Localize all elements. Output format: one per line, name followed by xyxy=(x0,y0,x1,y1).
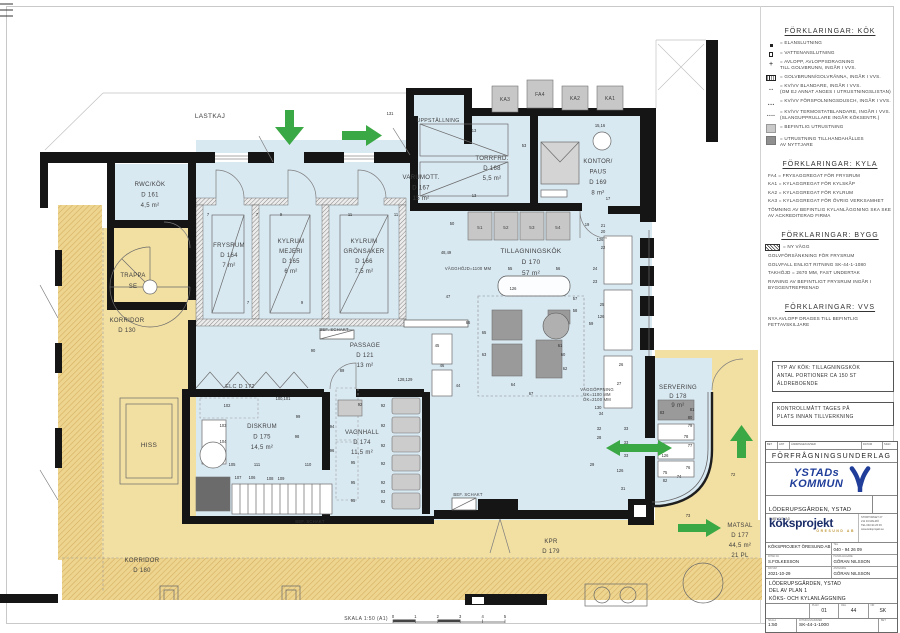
plus-icon xyxy=(765,59,777,67)
ref-tag: 92 xyxy=(381,480,386,485)
legend-kok-item: = KV/VV TERMOSTATBLANDARE, INGÅR I VVS.(… xyxy=(765,109,895,121)
scale-tick: 0 xyxy=(392,614,395,619)
ref-tag: 15,16 xyxy=(595,123,606,128)
ref-tag: 60 xyxy=(561,352,566,357)
legend-text: = ELANSLUTNING xyxy=(780,40,822,46)
ystad-falcon-icon xyxy=(847,466,873,492)
ref-tag: 64 xyxy=(511,382,516,387)
floor-plan: SKALA 1:50 (A1) 012345 LASTKAJUPPSTÄLLNI… xyxy=(0,0,762,630)
ystad-logo-line2: KOMMUN xyxy=(790,479,844,490)
ref-tag: 24 xyxy=(593,266,598,271)
ref-tag: 47 xyxy=(446,294,451,299)
rev-col-datum: DATUM xyxy=(862,442,883,449)
ref-tag: 126 xyxy=(662,453,670,458)
legend-text: = BEFINTLIG UTRUSTNING xyxy=(780,124,844,130)
ref-tag: 33 xyxy=(624,440,629,445)
label-lastkaj: LASTKAJ xyxy=(195,113,225,120)
ref-tag: 44 xyxy=(456,383,461,388)
ref-tag: 11 xyxy=(394,212,399,217)
ref-tag: 31 xyxy=(621,486,626,491)
hatch-icon xyxy=(765,244,780,251)
ref-tag: 80 xyxy=(688,415,693,420)
ref-tag: 33 xyxy=(624,426,629,431)
ref-tag: 66 xyxy=(466,320,471,325)
koksprojekt-logo-row: köksprojekt ÖRESUND AB STORTORGET 27 211… xyxy=(766,514,897,543)
dots-2-icon xyxy=(765,83,777,92)
ref-tag: 27 xyxy=(617,381,622,386)
legend-kok-item: = BEFINTLIG UTRUSTNING xyxy=(765,124,895,133)
scale-text: SKALA 1:50 (A1) xyxy=(344,616,388,622)
ref-tag: 13 xyxy=(472,128,477,133)
object-line: LÖDERUPSGÅRDEN, YSTAD xyxy=(769,581,894,588)
ref-tag: 126 xyxy=(510,286,518,291)
ref-tag: 105 xyxy=(229,462,237,467)
field-drawn-by: S.FOLKESSON xyxy=(768,559,829,565)
note-line: TYP AV KÖK: TILLAGNINGSKÖK xyxy=(777,365,889,373)
legend-text: GOLVFALL ENLIGT RITNING SK-44-1-1080 xyxy=(768,262,866,268)
rev-col-sign: SIGN xyxy=(883,442,897,449)
drawing-number: SK-44-1-1000 xyxy=(799,623,876,628)
scale-tick: 1 xyxy=(414,614,417,619)
legend-text: FA4 = FRYSAGGREGAT FÖR FRYSRUM xyxy=(768,173,860,179)
koksprojekt-logo: köksprojekt xyxy=(769,517,855,529)
field-tel: 040 - 94 26 09 xyxy=(834,547,896,553)
ref-tag: 63 xyxy=(482,352,487,357)
ref-tag: 103 xyxy=(220,423,228,428)
legend-text: = VATTENANSLUTNING xyxy=(780,50,835,56)
ref-tag: 77 xyxy=(688,443,693,448)
ref-tag: 93 xyxy=(381,489,386,494)
legend-text: TÖMNING AV BEFINTLIG KYLANLÄGGNING SKA S… xyxy=(768,207,891,219)
legend-kok-item: = KV/VV BLANDARE, INGÅR I VVS.(OM EJ ANN… xyxy=(765,83,895,95)
note-wall-height: VÄGGHÖJD=1100 MM xyxy=(445,266,492,271)
ref-tag: 19 xyxy=(585,222,590,227)
title-fields: KÖKSPROJEKT ÖRESUND AB TEL040 - 94 26 09… xyxy=(766,543,897,579)
ref-tag: 76 xyxy=(686,465,691,470)
ref-tag: 23 xyxy=(593,279,598,284)
ref-tag: 65 xyxy=(482,330,487,335)
legend-bygg-item: RIVNING AV BEFINTLIGT FRYSRUM INGÅR IBYG… xyxy=(765,279,895,291)
legend-vvs-item: NYA AVLOPP DRAGES TILL BEFINTLIGFETTAVSK… xyxy=(765,316,895,328)
dots-3-icon xyxy=(765,98,777,107)
ref-tag: 126 xyxy=(617,468,625,473)
ref-tag: 74 xyxy=(677,474,682,479)
square-open-icon xyxy=(765,50,777,57)
ystads-kommun-logo: YSTADs KOMMUN xyxy=(766,463,897,496)
legend-text: = KV/VV TERMOSTATBLANDARE, INGÅR I VVS.(… xyxy=(780,109,890,121)
ref-tag: 92 xyxy=(381,499,386,504)
meta-del: 44 xyxy=(841,608,865,614)
legend-text: KA3 = KYLAGGREGAT FÖR ÖVRIG VERKSAMHET xyxy=(768,198,884,204)
ref-tag: 13 xyxy=(472,193,477,198)
meta-row: PLAN01 DEL44 NRSK xyxy=(766,604,897,619)
scale-row: SKALA1:50 RITNINGSNUMMERSK-44-1-1000 BET xyxy=(766,619,897,632)
ref-tag: 55 xyxy=(508,266,513,271)
note-kitchen-type: TYP AV KÖK: TILLAGNINGSKÖK ANTAL PORTION… xyxy=(772,361,894,392)
legend-kok-item: = KV/VV FÖRSPOLNINGSDUSCH, INGÅR I VVS. xyxy=(765,98,895,107)
legend-bygg-item: GOLVFALL ENLIGT RITNING SK-44-1-1080 xyxy=(765,262,895,268)
rev-col-andringen: ÄNDRINGEN AVSER xyxy=(790,442,862,449)
ref-tag: 128,129 xyxy=(398,377,414,382)
document-status: FÖRFRÅGNINGSUNDERLAG xyxy=(766,450,897,463)
ref-tag: 102 xyxy=(224,403,232,408)
legend-kok-item: = UTRUSTNING TILLHANDAHÅLLESAV NYTTJARE xyxy=(765,136,895,148)
ref-tag: 106 xyxy=(249,475,257,480)
project-row: LÖDERUPSGÅRDEN, YSTAD OMBYGGNAD xyxy=(766,496,897,514)
ref-tag: 98 xyxy=(295,434,300,439)
legend-text: TAKHÖJD = 2670 MM, FAST UNDERTAK xyxy=(768,270,860,276)
ref-tag: 96 xyxy=(330,448,335,453)
project-side-cell xyxy=(872,496,897,513)
swatch-light-icon xyxy=(765,124,777,133)
ref-tag: 73 xyxy=(686,513,691,518)
legend-title-kyla: FÖRKLARINGAR: KYLA xyxy=(765,161,895,168)
legend-text: = NY VÄGG xyxy=(783,244,810,250)
ref-tag: 59 xyxy=(589,321,594,326)
legend-section-kok: FÖRKLARINGAR: KÖK = ELANSLUTNING= VATTEN… xyxy=(765,28,895,148)
legend-text: = KV/VV FÖRSPOLNINGSDUSCH, INGÅR I VVS. xyxy=(780,98,891,104)
koksprojekt-address: STORTORGET 27 211 34 MALMÖ TEL 040-94 26… xyxy=(858,514,897,542)
ref-tag: 126 xyxy=(598,314,606,319)
ref-tag: 21 xyxy=(601,223,606,228)
ref-tag: 72 xyxy=(731,472,736,477)
label-eq-52: 52 xyxy=(503,225,509,230)
note-line: KONTROLLMÅTT TAGES PÅ xyxy=(777,406,889,414)
project-name: LÖDERUPSGÅRDEN, YSTAD xyxy=(769,507,851,513)
note-control-measure: KONTROLLMÅTT TAGES PÅ PLATS INNAN TILLVE… xyxy=(772,402,894,426)
square-filled-icon xyxy=(765,40,777,47)
title-block: BET ANT ÄNDRINGEN AVSER DATUM SIGN FÖRFR… xyxy=(765,441,898,633)
ref-tag: 111 xyxy=(254,462,261,467)
ref-tag: 53 xyxy=(522,143,527,148)
ref-tag: 20 xyxy=(601,229,606,234)
meta-nr: SK xyxy=(871,608,895,614)
legend-text: RIVNING AV BEFINTLIGT FRYSRUM INGÅR IBYG… xyxy=(768,279,871,291)
ref-tag: 82 xyxy=(663,478,668,483)
scale-tick: 2 xyxy=(437,614,440,619)
scale-tick: 5 xyxy=(504,614,507,619)
ref-tag: 22 xyxy=(601,245,606,250)
ref-tag: 46 xyxy=(440,363,445,368)
ref-tag: 130 xyxy=(595,405,603,410)
legend-panel: FÖRKLARINGAR: KÖK = ELANSLUTNING= VATTEN… xyxy=(765,28,895,341)
address-line: www.koksprojekt.se xyxy=(861,528,895,532)
label-fa4: FA4 xyxy=(535,92,545,98)
legend-bygg-item: TAKHÖJD = 2670 MM, FAST UNDERTAK xyxy=(765,270,895,276)
ref-tag: 56 xyxy=(556,266,561,271)
ref-tag: 79 xyxy=(688,423,693,428)
legend-kok-item: = ELANSLUTNING xyxy=(765,40,895,47)
label-eq-54: 54 xyxy=(555,225,561,230)
legend-text: = GOLVBRUNN/GOLVRÄNNA, INGÅR I VVS. xyxy=(780,74,881,80)
ref-tag: 94 xyxy=(330,424,335,429)
legend-kyla-item: KA1 = KYLAGGREGAT FÖR KYLSKÅP xyxy=(765,181,895,187)
label-ka1: KA1 xyxy=(605,96,615,102)
label-hiss: HISS xyxy=(141,442,158,449)
ref-tag: 107 xyxy=(235,475,243,480)
scale-bar: SKALA 1:50 (A1) 012345 xyxy=(344,614,507,623)
legend-section-kyla: FÖRKLARINGAR: KYLA FA4 = FRYSAGGREGAT FÖ… xyxy=(765,161,895,219)
legend-text: NYA AVLOPP DRAGES TILL BEFINTLIGFETTAVSK… xyxy=(768,316,858,328)
ref-tag: 109 xyxy=(278,476,286,481)
field-handler: GÖRAN NILSSON xyxy=(834,559,896,565)
ref-tag: 92 xyxy=(358,402,363,407)
ref-tag: 126 xyxy=(597,237,605,242)
legend-text: = KV/VV BLANDARE, INGÅR I VVS.(OM EJ ANN… xyxy=(780,83,891,95)
ref-tag: 92 xyxy=(381,443,386,448)
legend-text: GOLVFÖRSÄNKNING FÖR FRYSRUM xyxy=(768,253,854,259)
legend-kok-item: = AVLOPP, AVLOPPSDRAGNINGTILL GOLVBRUNN,… xyxy=(765,59,895,71)
ref-tag: 90 xyxy=(311,348,316,353)
object-line: KÖKS- OCH KYLANLÄGGNING xyxy=(769,596,894,603)
ref-tag: 100,101 xyxy=(276,396,292,401)
floor-drain-icon xyxy=(765,74,777,81)
ref-tag: 83 xyxy=(660,410,665,415)
ref-tag: 104 xyxy=(220,439,228,444)
ref-tag: 81 xyxy=(690,407,695,412)
ref-tag: 75 xyxy=(663,470,668,475)
field-responsible: GÖRAN NILSSON xyxy=(834,571,896,577)
ref-tag: 48,49 xyxy=(441,250,452,255)
ref-tag: 110 xyxy=(305,462,312,467)
label-ka3: KA3 xyxy=(500,97,510,103)
ref-tag: 131 xyxy=(387,111,395,116)
ref-tag: 26 xyxy=(619,362,624,367)
legend-section-bygg: FÖRKLARINGAR: BYGG = NY VÄGGGOLVFÖRSÄNKN… xyxy=(765,232,895,291)
legend-text: = UTRUSTNING TILLHANDAHÅLLESAV NYTTJARE xyxy=(780,136,864,148)
field-date: 2021-10-29 xyxy=(768,571,829,577)
ref-tag: 50 xyxy=(450,221,455,226)
label-eq-53: 53 xyxy=(529,225,535,230)
scale-tick: 3 xyxy=(459,614,462,619)
object-line: DEL AV PLAN 1 xyxy=(769,588,894,595)
meta-plan: 01 xyxy=(812,608,836,614)
legend-title-vvs: FÖRKLARINGAR: VVS xyxy=(765,304,895,311)
ref-tag: 32 xyxy=(597,426,602,431)
legend-text: KA1 = KYLAGGREGAT FÖR KYLSKÅP xyxy=(768,181,855,187)
ref-tag: 57 xyxy=(573,296,578,301)
scale-tick: 4 xyxy=(481,614,484,619)
label-elc: ELC D 172 xyxy=(225,384,255,390)
legend-title-bygg: FÖRKLARINGAR: BYGG xyxy=(765,232,895,239)
ref-tag: 62 xyxy=(563,366,568,371)
legend-kyla-item: KA3 = KYLAGGREGAT FÖR ÖVRIG VERKSAMHET xyxy=(765,198,895,204)
rev-col-bet: BET xyxy=(766,442,778,449)
legend-title-kok: FÖRKLARINGAR: KÖK xyxy=(765,28,895,35)
label-uppstallning: UPPSTÄLLNING xyxy=(416,117,459,124)
ref-tag: 58 xyxy=(573,308,578,313)
note-line: ÄLDREBOENDE xyxy=(777,381,889,389)
corner-marks xyxy=(0,4,13,16)
ref-tag: 33 xyxy=(624,453,629,458)
ref-tag: 92 xyxy=(381,403,386,408)
ref-tag: 45 xyxy=(435,343,440,348)
ref-tag: 25 xyxy=(600,302,605,307)
ref-tag: 67 xyxy=(529,391,534,396)
note-bef-schakt-3: BEF. SCHAKT xyxy=(453,492,482,497)
legend-bygg-item: = NY VÄGG xyxy=(765,244,895,251)
ref-tag: 78 xyxy=(684,434,689,439)
legend-text: = AVLOPP, AVLOPPSDRAGNINGTILL GOLVBRUNN,… xyxy=(780,59,856,71)
ref-tag: 17 xyxy=(606,196,611,201)
note-bef-schakt-1: BEF. SCHAKT xyxy=(319,327,348,332)
note-line: PLATS INNAN TILLVERKNING xyxy=(777,414,889,422)
ref-tag: 92 xyxy=(381,461,386,466)
legend-kyla-item: FA4 = FRYSAGGREGAT FÖR FRYSRUM xyxy=(765,173,895,179)
legend-kok-item: = VATTENANSLUTNING xyxy=(765,50,895,57)
ref-tag: 89 xyxy=(340,368,345,373)
ref-tag: 95 xyxy=(351,498,356,503)
ref-tag: 95 xyxy=(351,480,356,485)
ref-tag: 34 xyxy=(599,411,604,416)
object-description: LÖDERUPSGÅRDEN, YSTAD DEL AV PLAN 1 KÖKS… xyxy=(766,579,897,604)
rev-col-ant: ANT xyxy=(778,442,790,449)
drawing-scale: 1:50 xyxy=(768,623,794,628)
dots-4-icon xyxy=(765,109,777,118)
ref-tag: 95 xyxy=(351,460,356,465)
note-bef-schakt-2: BEF. SCHAKT xyxy=(295,519,324,524)
swatch-dark-icon xyxy=(765,136,777,145)
ref-tag: 99 xyxy=(296,414,301,419)
legend-bygg-item: GOLVFÖRSÄNKNING FÖR FRYSRUM xyxy=(765,253,895,259)
flow-arrow-down xyxy=(275,110,304,145)
field-firm: KÖKSPROJEKT ÖRESUND AB xyxy=(768,544,829,550)
note-line: ANTAL PORTIONER CA 150 ST xyxy=(777,373,889,381)
label-ka2: KA2 xyxy=(570,96,580,102)
ref-tag: 29 xyxy=(590,462,595,467)
legend-kok-item: = GOLVBRUNN/GOLVRÄNNA, INGÅR I VVS. xyxy=(765,74,895,81)
label-eq-51: 51 xyxy=(477,225,483,230)
ref-tag: 92 xyxy=(381,423,386,428)
legend-kyla-item: TÖMNING AV BEFINTLIG KYLANLÄGGNING SKA S… xyxy=(765,207,895,219)
legend-kyla-item: KA2 = KYLAGGREGAT FÖR KYLRUM xyxy=(765,190,895,196)
ref-tag: 108 xyxy=(267,476,275,481)
ref-tag: 28 xyxy=(597,435,602,440)
legend-text: KA2 = KYLAGGREGAT FÖR KYLRUM xyxy=(768,190,853,196)
note-wall-opening: VÄGGÖPPNINGUK=1100 MMÖK=2100 MM xyxy=(580,387,614,402)
revision-header-row: BET ANT ÄNDRINGEN AVSER DATUM SIGN xyxy=(766,442,897,450)
ref-tag: 61 xyxy=(558,343,563,348)
ref-tag: 11 xyxy=(348,212,353,217)
legend-section-vvs: FÖRKLARINGAR: VVS NYA AVLOPP DRAGES TILL… xyxy=(765,304,895,328)
